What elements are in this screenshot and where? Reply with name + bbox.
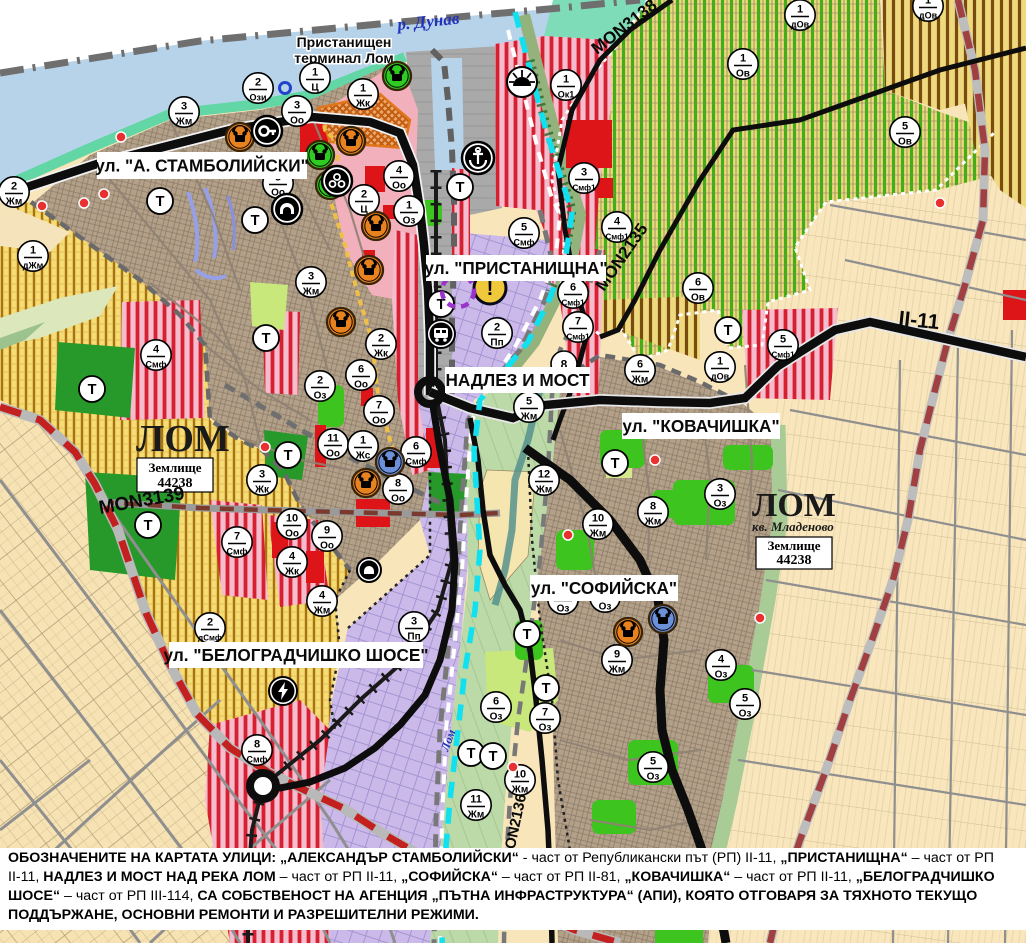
svg-text:дОв: дОв (791, 20, 810, 30)
svg-text:Т: Т (156, 194, 165, 210)
svg-text:3: 3 (581, 167, 587, 179)
svg-text:Жк: Жк (373, 349, 389, 360)
svg-text:ОБОЗНАЧЕНИТЕ НА КАРТАТА УЛИЦИ:: ОБОЗНАЧЕНИТЕ НА КАРТАТА УЛИЦИ: „АЛЕКСАНД… (8, 848, 994, 866)
svg-text:6: 6 (493, 696, 499, 708)
svg-text:Оо: Оо (320, 541, 334, 552)
svg-text:Ов: Ов (736, 69, 750, 80)
svg-text:Оз: Оз (599, 602, 612, 613)
svg-text:Оз: Оз (539, 723, 552, 734)
svg-text:Смф1: Смф1 (566, 333, 590, 342)
svg-text:Смф1: Смф1 (572, 184, 596, 193)
svg-text:Оо: Оо (285, 529, 299, 540)
svg-text:9: 9 (324, 525, 330, 537)
svg-text:6: 6 (413, 441, 419, 453)
svg-text:Ози: Ози (249, 93, 266, 103)
svg-text:ул. "БЕЛОГРАДЧИШКО ШОСЕ": ул. "БЕЛОГРАДЧИШКО ШОСЕ" (164, 645, 429, 665)
svg-text:2: 2 (11, 181, 17, 193)
svg-text:1: 1 (406, 200, 412, 212)
svg-text:Пп: Пп (490, 338, 503, 349)
svg-text:6: 6 (695, 277, 701, 289)
svg-text:2: 2 (361, 189, 367, 201)
svg-text:10: 10 (592, 513, 604, 525)
svg-text:Т: Т (284, 448, 293, 464)
svg-text:Т: Т (724, 323, 733, 339)
svg-text:2: 2 (317, 375, 323, 387)
svg-text:Оо: Оо (372, 416, 386, 427)
svg-text:дЖм: дЖм (23, 261, 44, 271)
svg-text:Жм: Жм (535, 485, 552, 496)
svg-text:Т: Т (467, 746, 476, 762)
svg-text:5: 5 (650, 756, 656, 768)
svg-text:1: 1 (360, 435, 366, 447)
svg-text:Жм: Жм (175, 117, 192, 128)
svg-text:Жк: Жк (355, 99, 371, 110)
svg-text:1: 1 (797, 4, 803, 16)
svg-text:Жм: Жм (511, 785, 528, 796)
svg-text:2: 2 (494, 322, 500, 334)
svg-text:Смф1: Смф1 (771, 351, 795, 360)
svg-text:4: 4 (153, 344, 160, 356)
svg-text:ШОСЕ“ – част от РП III-114, СА: ШОСЕ“ – част от РП III-114, СА СОБСТВЕНО… (8, 888, 977, 904)
svg-text:8: 8 (395, 478, 401, 490)
svg-text:дОв: дОв (711, 372, 730, 382)
svg-text:8: 8 (254, 739, 260, 751)
svg-text:Жм: Жм (589, 529, 606, 540)
svg-text:9: 9 (614, 649, 620, 661)
svg-text:II-11, НАДЛЕЗ И МОСТ НАД РЕКА: II-11, НАДЛЕЗ И МОСТ НАД РЕКА ЛОМ – част… (8, 867, 995, 885)
svg-text:6: 6 (570, 282, 576, 294)
svg-text:5: 5 (742, 693, 748, 705)
svg-text:Т: Т (456, 180, 465, 196)
svg-text:кв. Младеново: кв. Младеново (752, 519, 834, 534)
svg-text:Т: Т (437, 297, 446, 313)
svg-text:Оо: Оо (290, 116, 304, 127)
svg-text:Жк: Жк (284, 567, 300, 578)
svg-text:Смф: Смф (146, 360, 167, 370)
svg-text:2: 2 (207, 617, 213, 629)
svg-text:Землище: Землище (148, 460, 201, 475)
svg-text:Смф1: Смф1 (561, 299, 585, 308)
svg-text:ул. "СОФИЙСКА": ул. "СОФИЙСКА" (531, 578, 677, 598)
svg-text:3: 3 (259, 469, 265, 481)
svg-text:1: 1 (925, 0, 931, 7)
svg-text:Т: Т (251, 213, 260, 229)
svg-text:Жм: Жм (467, 810, 484, 821)
svg-text:2: 2 (255, 77, 261, 89)
svg-text:6: 6 (637, 359, 643, 371)
svg-text:7: 7 (376, 400, 382, 412)
svg-text:ПОДДЪРЖАНЕ, ОСНОВНИ РЕМОНТИ И: ПОДДЪРЖАНЕ, ОСНОВНИ РЕМОНТИ И РАЗРЕШИТЕЛ… (8, 907, 479, 923)
svg-text:10: 10 (286, 513, 298, 525)
svg-text:Пп: Пп (407, 632, 420, 643)
svg-text:5: 5 (780, 334, 786, 346)
svg-text:Оо: Оо (354, 380, 368, 391)
svg-text:1: 1 (30, 245, 36, 257)
svg-text:1: 1 (563, 74, 569, 86)
svg-text:НАДЛЕЗ И МОСТ: НАДЛЕЗ И МОСТ (445, 370, 590, 390)
svg-text:ул. "КОВАЧИШКА": ул. "КОВАЧИШКА" (622, 416, 779, 436)
svg-text:4: 4 (319, 590, 326, 602)
svg-text:Оз: Оз (739, 709, 752, 720)
svg-text:11: 11 (470, 794, 482, 806)
svg-text:Оз: Оз (715, 670, 728, 681)
svg-text:5: 5 (526, 396, 532, 408)
svg-text:Т: Т (489, 749, 498, 765)
svg-text:7: 7 (542, 707, 548, 719)
svg-text:4: 4 (396, 165, 403, 177)
svg-text:Смф: Смф (247, 755, 268, 765)
svg-text:Жм: Жм (313, 606, 330, 617)
svg-text:Оо: Оо (326, 449, 340, 460)
svg-text:Жм: Жм (5, 197, 22, 208)
svg-text:Т: Т (262, 331, 271, 347)
svg-text:Смф: Смф (227, 547, 248, 557)
svg-text:Пристанищен: Пристанищен (297, 34, 392, 50)
svg-text:Ц: Ц (311, 83, 319, 94)
svg-text:Т: Т (88, 382, 97, 398)
svg-text:1: 1 (717, 356, 723, 368)
svg-text:Смф: Смф (406, 457, 427, 467)
svg-text:7: 7 (575, 316, 581, 328)
svg-text:Т: Т (542, 681, 551, 697)
svg-text:1: 1 (312, 67, 318, 79)
svg-text:2: 2 (378, 333, 384, 345)
svg-text:дСмф: дСмф (198, 634, 222, 643)
svg-text:Ок1: Ок1 (558, 90, 575, 100)
svg-text:4: 4 (289, 551, 296, 563)
svg-text:4: 4 (614, 216, 621, 228)
svg-text:4: 4 (718, 654, 725, 666)
svg-text:Смф1: Смф1 (605, 233, 629, 242)
svg-text:Т: Т (611, 456, 620, 472)
svg-text:Жс: Жс (355, 451, 371, 462)
svg-text:Жм: Жм (644, 517, 661, 528)
svg-text:II-11: II-11 (897, 307, 940, 334)
svg-text:Оз: Оз (647, 772, 660, 783)
svg-text:Оз: Оз (314, 391, 327, 402)
svg-text:5: 5 (521, 222, 527, 234)
svg-text:Жм: Жм (608, 665, 625, 676)
svg-text:1: 1 (360, 83, 366, 95)
svg-text:Оо: Оо (391, 494, 405, 505)
svg-text:7: 7 (234, 531, 240, 543)
svg-text:6: 6 (358, 364, 364, 376)
svg-text:ул. "ПРИСТАНИЩНА": ул. "ПРИСТАНИЩНА" (424, 258, 607, 278)
svg-text:11: 11 (327, 433, 339, 445)
svg-text:3: 3 (717, 483, 723, 495)
svg-text:Смф: Смф (514, 238, 535, 248)
svg-text:8: 8 (650, 501, 656, 513)
svg-text:3: 3 (411, 616, 417, 628)
svg-text:Жк: Жк (254, 485, 270, 496)
svg-text:дОв: дОв (919, 11, 938, 21)
svg-text:5: 5 (902, 121, 908, 133)
svg-text:Жм: Жм (520, 412, 537, 423)
svg-text:Оз: Оз (557, 604, 570, 615)
svg-text:ул. "А. СТАМБОЛИЙСКИ": ул. "А. СТАМБОЛИЙСКИ" (95, 156, 309, 176)
svg-text:!: ! (487, 278, 494, 300)
svg-text:ЛОМ: ЛОМ (136, 418, 230, 460)
svg-text:1: 1 (740, 53, 746, 65)
svg-text:Т: Т (144, 518, 153, 534)
svg-text:Оз: Оз (714, 499, 727, 510)
svg-text:44238: 44238 (777, 553, 812, 568)
svg-text:3: 3 (181, 101, 187, 113)
svg-text:3: 3 (294, 100, 300, 112)
svg-text:Оз: Оз (403, 216, 416, 227)
svg-text:Ов: Ов (691, 293, 705, 304)
svg-text:Землище: Землище (767, 538, 820, 553)
svg-text:12: 12 (538, 469, 550, 481)
svg-text:Оо: Оо (392, 181, 406, 192)
svg-text:Т: Т (523, 627, 532, 643)
svg-text:3: 3 (308, 271, 314, 283)
svg-text:Жм: Жм (631, 375, 648, 386)
svg-text:Оз: Оз (490, 712, 503, 723)
svg-text:Ов: Ов (898, 137, 912, 148)
svg-text:Жм: Жм (302, 287, 319, 298)
